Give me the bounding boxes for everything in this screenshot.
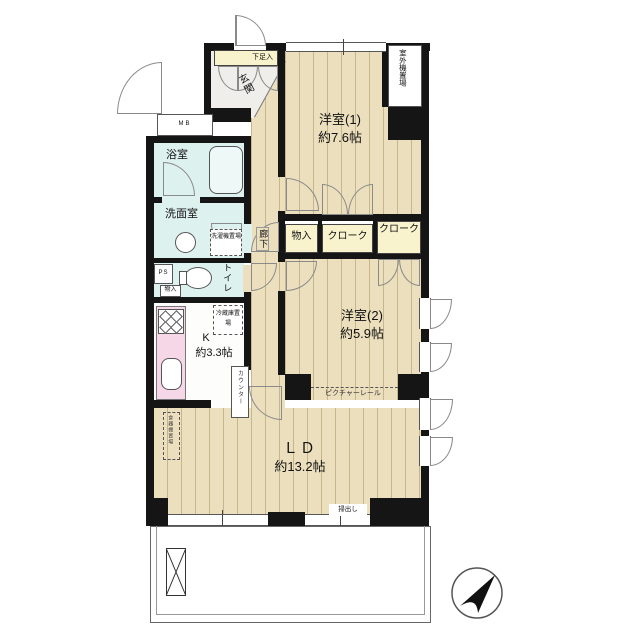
wall-toilet-kitchen (150, 297, 247, 303)
refrigerator-label: 冷蔵庫置場 (214, 310, 242, 329)
compass-icon (450, 566, 504, 620)
shoe-cabinet-label: 下足入 (252, 54, 273, 63)
toilet-bowl (184, 267, 212, 289)
wall-bottom-left (146, 498, 168, 526)
bathroom-label: 浴室 (166, 149, 188, 163)
wall-bath-top (147, 136, 251, 143)
floor-plan: 下足入 MB 洗濯機置場 PS 物入 冷蔵庫置場 カウンター 物入 クローク ク… (0, 0, 640, 640)
cloak1-label: クローク (320, 231, 375, 244)
wall-bottom-right (370, 498, 429, 526)
washing-machine-label: 洗濯機置場 (211, 233, 241, 242)
ld-window-2-arc (430, 437, 453, 466)
western2-size: 約5.9帖 (317, 326, 407, 342)
wall-hall-left-a (244, 136, 251, 224)
cloak2-label: クローク (377, 223, 421, 237)
wall-ld-pier-left (285, 374, 311, 400)
western2-window-2-arc (430, 343, 452, 372)
balcony-partition-x (166, 548, 186, 596)
kitchen-size: 約3.3帖 (186, 347, 242, 361)
balcony-inner-line (156, 526, 425, 615)
washroom-label: 洗面室 (165, 208, 198, 222)
wall-bottom-center (268, 512, 305, 526)
bath-door-gap (162, 196, 200, 204)
wall-kitchen-bottom (147, 400, 211, 408)
western2-name: 洋室(2) (317, 308, 407, 324)
western1-name: 洋室(1) (295, 112, 385, 128)
ld-size: 約13.2帖 (245, 459, 355, 475)
western2-window-1-arc (430, 299, 452, 329)
ld-window-1-arc (430, 399, 453, 430)
front-door-arc (235, 15, 266, 46)
western1-top-window (286, 42, 386, 52)
wall-closet-top (278, 214, 429, 221)
mono-iri-hall-label: 物入 (285, 231, 318, 244)
ld-bottom-window-1 (168, 514, 268, 526)
wall-outdoor-block (388, 107, 429, 140)
wall-hall-right-a (278, 50, 285, 177)
toilet-label: トイレ (221, 263, 232, 293)
western1-top-window-tick (343, 39, 344, 55)
toilet-tank (179, 271, 187, 285)
counter-label: カウンター (235, 370, 243, 405)
wall-ld-pier-right (398, 374, 421, 400)
wall-left (146, 136, 154, 526)
meter-box-door-arc (117, 62, 162, 114)
picture-rail-label: ピクチャーレール (325, 390, 381, 399)
western1-size: 約7.6帖 (295, 130, 385, 146)
meter-box-label: MB (157, 121, 213, 129)
kitchen-sink (161, 358, 182, 390)
wall-hall-right-c (278, 291, 285, 375)
wall-hall-left-b (244, 252, 251, 263)
kitchen-name: K (196, 332, 216, 346)
wall-hall-left-c (244, 291, 251, 370)
sliding-window-label: 掃出し (329, 506, 367, 514)
bathtub (209, 146, 243, 194)
ld-name: ＬＤ (245, 440, 355, 459)
outdoor-unit-label: 室外機置場 (398, 49, 407, 87)
balcony-partition-box (166, 548, 186, 596)
hallway-label: 廊下 (256, 227, 269, 251)
shoe-cabinet: 下足入 (214, 50, 278, 66)
wall-wash-toilet (150, 258, 247, 263)
partition-dashed-line (311, 387, 398, 388)
mono-iri-small-label: 物入 (160, 287, 181, 295)
pipe-space-label: PS (154, 270, 173, 278)
wall-entrance-left (204, 43, 211, 118)
cupboard-label: 食器棚置場 (167, 415, 173, 445)
washroom-sink (175, 232, 196, 253)
